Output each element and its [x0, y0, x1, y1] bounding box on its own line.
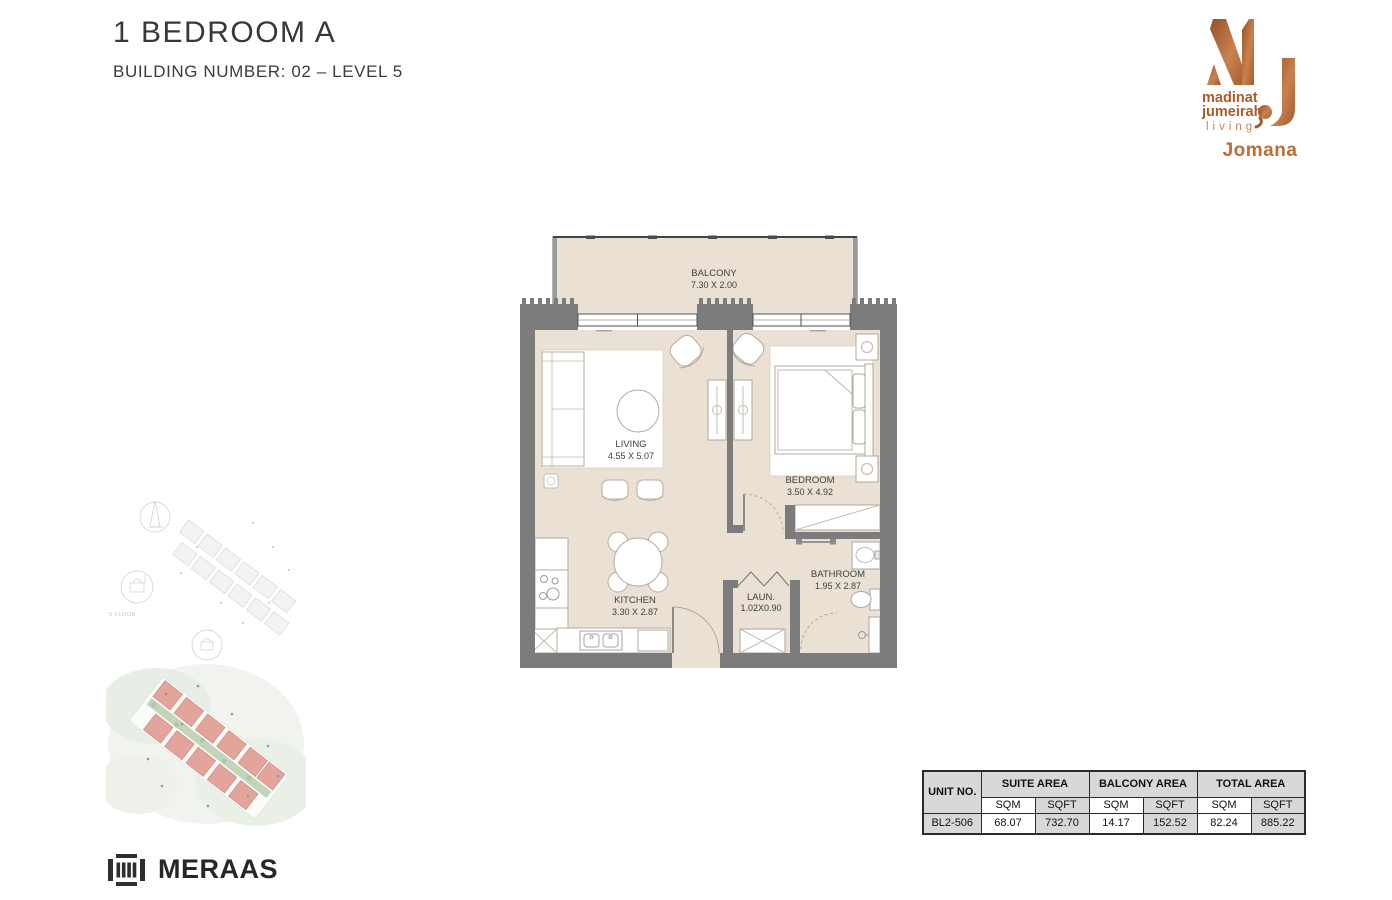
page-subtitle: BUILDING NUMBER: 02 – LEVEL 5 [113, 62, 403, 82]
site-sketch-map: 5 FLOOR [103, 475, 308, 665]
laundry-left-wall [723, 580, 733, 653]
balcony-label: BALCONY [691, 268, 737, 279]
divider-wall [727, 330, 733, 527]
laundry-bath-wall [790, 580, 800, 653]
mj-brand-block: madinat jumeirah living Jomana [1196, 16, 1324, 168]
svg-text:1.02X0.90: 1.02X0.90 [740, 603, 781, 613]
nightstand [856, 334, 878, 360]
brochure-page: 1 BEDROOM A BUILDING NUMBER: 02 – LEVEL … [0, 0, 1392, 900]
table-header-balcony: BALCONY AREA [1089, 771, 1197, 797]
landmark-burj-icon [140, 501, 170, 532]
subheader-sqft: SQFT [1035, 797, 1089, 813]
unit-number: BL2-506 [923, 813, 981, 834]
meraas-gate-icon [107, 853, 147, 889]
landmark-building-icon [121, 571, 153, 603]
table-row: BL2-506 68.07 732.70 14.17 152.52 82.24 … [923, 813, 1305, 834]
wardrobe [795, 505, 880, 530]
total-sqm: 82.24 [1197, 813, 1251, 834]
balcony-sqm: 14.17 [1089, 813, 1143, 834]
svg-text:1.95 X 2.87: 1.95 X 2.87 [815, 581, 861, 591]
dining-set [608, 532, 668, 592]
pillow [853, 410, 865, 444]
balcony-sqft: 152.52 [1143, 813, 1197, 834]
svg-text:4.55 X 5.07: 4.55 X 5.07 [608, 451, 654, 461]
suite-sqft: 732.70 [1035, 813, 1089, 834]
bathroom-sink-icon [852, 542, 880, 569]
bedroom-label: BEDROOM [785, 475, 834, 486]
svg-text:3.50 X 4.92: 3.50 X 4.92 [787, 487, 833, 497]
suite-sqm: 68.07 [981, 813, 1035, 834]
subheader-sqm: SQM [1197, 797, 1251, 813]
meraas-wordmark: MERAAS [158, 854, 278, 885]
landmark-building-icon [192, 630, 222, 660]
pillow [853, 374, 865, 408]
subheader-sqft: SQFT [1251, 797, 1305, 813]
bathroom-label: BATHROOM [811, 569, 865, 580]
table-header-total: TOTAL AREA [1197, 771, 1305, 797]
kitchen-label: KITCHEN [614, 595, 656, 606]
railing-tick [586, 236, 595, 240]
table-header-unit: UNIT NO. [923, 771, 981, 813]
nightstand [856, 456, 878, 482]
svg-text:7.30 X 2.00: 7.30 X 2.00 [691, 280, 737, 290]
appliance-box [638, 630, 668, 651]
page-title: 1 BEDROOM A [113, 16, 336, 50]
area-table: UNIT NO. SUITE AREA BALCONY AREA TOTAL A… [922, 770, 1306, 835]
subheader-sqm: SQM [1089, 797, 1143, 813]
brand-line-living: living [1206, 121, 1256, 134]
svg-text:3.30 X 2.87: 3.30 X 2.87 [612, 607, 658, 617]
floor-plan: BALCONY 7.30 X 2.00 LIVING 4.55 X 5.07 B… [520, 228, 898, 670]
double-sink-icon [580, 631, 622, 650]
total-sqft: 885.22 [1251, 813, 1305, 834]
living-label: LIVING [615, 439, 646, 450]
building-strip-sketch [166, 520, 302, 635]
project-name: Jomana [1196, 140, 1324, 162]
dining-table [614, 538, 662, 586]
laundry-label: LAUN. [747, 592, 775, 603]
sketch-floor-note: 5 FLOOR [109, 612, 136, 618]
subheader-sqft: SQFT [1143, 797, 1197, 813]
headboard [865, 364, 873, 456]
coffee-table [617, 390, 659, 432]
table-header-suite: SUITE AREA [981, 771, 1089, 797]
brand-line-jumeirah: jumeirah [1202, 106, 1262, 119]
thermostat-icon [544, 474, 558, 488]
site-location-map [106, 664, 306, 826]
washer-box [740, 629, 785, 653]
bedroom-south-wall [785, 532, 880, 539]
subheader-sqm: SQM [981, 797, 1035, 813]
